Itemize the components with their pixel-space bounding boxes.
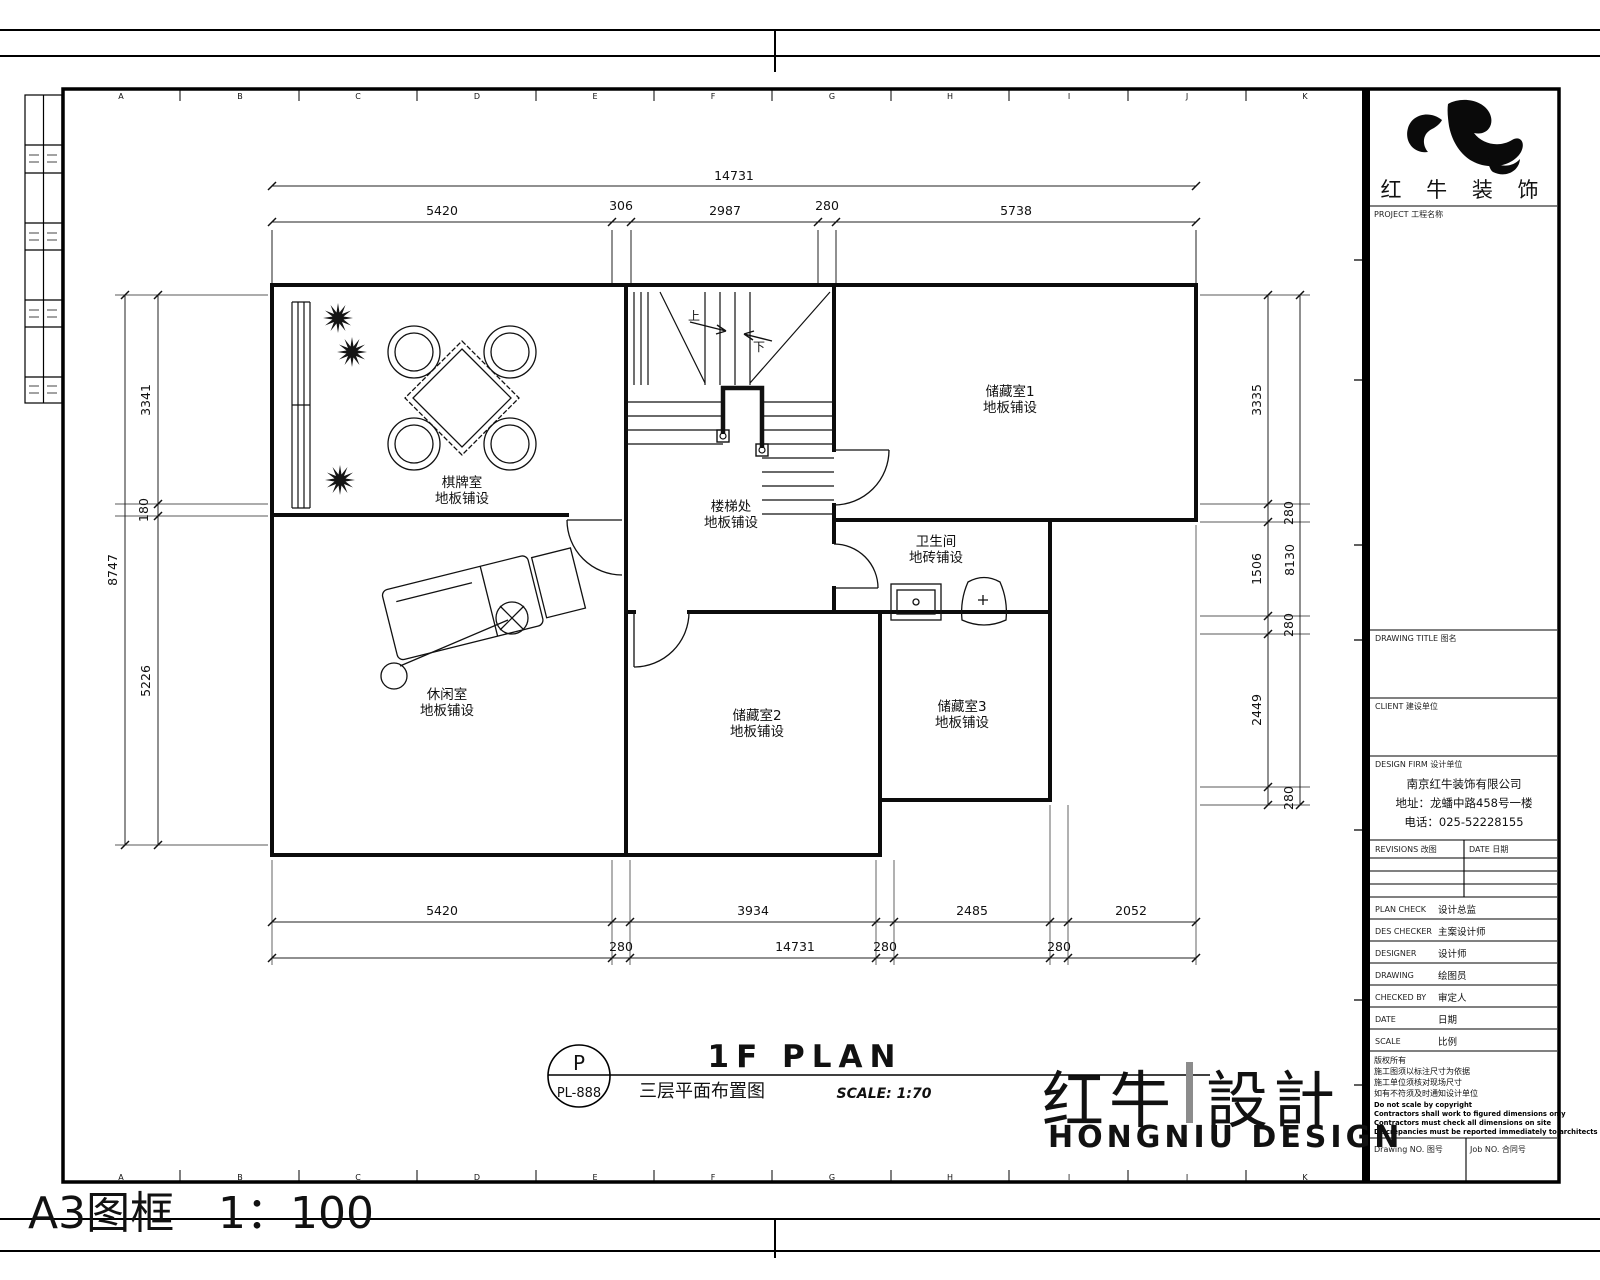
- grid-letter: J: [1185, 92, 1188, 101]
- dim-top-seg: 306: [609, 198, 633, 213]
- plant-icon: [337, 337, 367, 367]
- dim-bottom-seg: 2052: [1115, 903, 1147, 918]
- dim-top-total: 14731: [714, 168, 754, 183]
- bathroom-fixtures: [891, 578, 1006, 626]
- dim-right-gap: 280: [1281, 501, 1296, 525]
- room-name: 休闲室: [427, 686, 468, 703]
- grid-letter: I: [1068, 92, 1070, 101]
- plan-title-en: 1F PLAN: [708, 1039, 903, 1075]
- plants: [323, 303, 367, 495]
- grid-letter: H: [947, 92, 953, 101]
- room-label-leisure-room: 休闲室 地板铺设: [420, 686, 474, 719]
- window-strip: [292, 302, 310, 508]
- note-line: 版权所有: [1374, 1055, 1406, 1065]
- dim-bottom-seg: 5420: [426, 903, 458, 918]
- room-name: 楼梯处: [711, 499, 752, 515]
- room-name: 卫生间: [916, 534, 957, 550]
- title-bubble-code: PL-888: [557, 1086, 601, 1101]
- chair-icon: [484, 418, 536, 470]
- door-storage2: [634, 612, 689, 667]
- room-finish: 地板铺设: [704, 515, 758, 531]
- grid-letter: G: [829, 92, 835, 101]
- staff-row-label: CHECKED BY: [1375, 993, 1426, 1002]
- room-finish: 地板铺设: [435, 491, 489, 507]
- dim-bottom-seg: 3934: [737, 903, 769, 918]
- room-name: 储藏室1: [985, 383, 1034, 400]
- dim-right-seg: 2449: [1249, 694, 1264, 726]
- staff-row-label: DESIGNER: [1375, 949, 1417, 958]
- brand-cn-left: 红牛: [1042, 1064, 1176, 1137]
- room-label-storage1: 储藏室1 地板铺设: [983, 383, 1037, 416]
- sheet-border: [63, 89, 1559, 1182]
- dim-top-seg: 5738: [1000, 203, 1032, 218]
- dim-left-seg: 5226: [138, 665, 153, 697]
- grid-letter: A: [118, 1173, 124, 1182]
- grid-letters-top: A B C D E F G H I J K: [118, 92, 1308, 101]
- plan-title-scale: SCALE: 1:70: [837, 1086, 932, 1102]
- revisions-date-label: DATE 日期: [1469, 845, 1508, 854]
- note-line: Do not scale by copyright: [1374, 1101, 1473, 1109]
- grid-letter: I: [1068, 1173, 1070, 1182]
- drawing-title-label: DRAWING TITLE 图名: [1375, 633, 1457, 643]
- grid-letter: D: [474, 92, 480, 101]
- grid-letter: F: [711, 92, 716, 101]
- design-firm-label: DESIGN FIRM 设计单位: [1375, 759, 1462, 769]
- logo-brand-chars: 红 牛 装 饰: [1380, 178, 1547, 202]
- brand-divider: [1186, 1062, 1193, 1123]
- staff-rows: PLAN CHECK 设计总监 DES CHECKER 主案设计师 DESIGN…: [1375, 904, 1486, 1048]
- staff-row-value: 设计师: [1438, 948, 1467, 960]
- floor-lamp-icon: [381, 602, 528, 689]
- sink-icon: [891, 584, 941, 620]
- grid-letter: H: [947, 1173, 953, 1182]
- dimension-ticks: [121, 182, 1304, 962]
- room-label-stair-hall: 楼梯处 地板铺设: [704, 499, 758, 531]
- title-block-notes: 版权所有 施工图须以标注尺寸为依据 施工单位须核对现场尺寸 如有不符须及时通知设…: [1374, 1055, 1598, 1136]
- dimension-lines: [115, 186, 1310, 965]
- dim-bottom-gap: 280: [1047, 939, 1071, 954]
- grid-letter: F: [711, 1173, 716, 1182]
- cad-canvas: A B C D E F G H I J K A B C D E F G H I …: [0, 0, 1600, 1280]
- chair-icon: [484, 326, 536, 378]
- dim-bottom-seg: 2485: [956, 903, 988, 918]
- staff-row-label: SCALE: [1375, 1037, 1401, 1046]
- chair-icon: [388, 326, 440, 378]
- grid-letter: B: [237, 92, 243, 101]
- dim-top-seg: 5420: [426, 203, 458, 218]
- dim-right-total: 8130: [1282, 544, 1297, 576]
- grid-letter: K: [1302, 92, 1308, 101]
- dim-bottom-gap: 280: [873, 939, 897, 954]
- dim-left-seg: 180: [136, 498, 151, 522]
- dim-right-gap: 280: [1281, 613, 1296, 637]
- staff-row-label: DRAWING: [1375, 971, 1414, 980]
- room-label-bathroom: 卫生间 地砖铺设: [909, 534, 963, 566]
- staff-row-value: 比例: [1438, 1036, 1457, 1048]
- plant-icon: [325, 465, 355, 495]
- client-label: CLIENT 建设单位: [1375, 701, 1438, 711]
- grid-letter: J: [1185, 1173, 1188, 1182]
- staff-row-label: DATE: [1375, 1015, 1396, 1024]
- plant-icon: [323, 303, 353, 333]
- company-phone: 电话：025-52228155: [1404, 815, 1523, 829]
- frame-scale: 1：100: [218, 1188, 374, 1239]
- plan-title-cn: 三层平面布置图: [639, 1081, 765, 1102]
- dim-top-seg: 2987: [709, 203, 741, 218]
- room-finish: 地板铺设: [730, 724, 784, 740]
- grid-letter: C: [355, 1173, 361, 1182]
- room-name: 储藏室3: [937, 698, 986, 715]
- staff-row-value: 审定人: [1438, 992, 1467, 1004]
- title-bubble-letter: P: [573, 1051, 585, 1075]
- dim-bottom-gap: 280: [609, 939, 633, 954]
- room-finish: 地板铺设: [983, 400, 1037, 416]
- door-storage1: [834, 450, 889, 505]
- drawing-sheet: A B C D E F G H I J K A B C D E F G H I …: [0, 0, 1600, 1280]
- recliner: [381, 544, 587, 689]
- room-finish: 地板铺设: [420, 703, 474, 719]
- stair-up-label: 上: [688, 309, 700, 323]
- note-line: 施工单位须核对现场尺寸: [1374, 1077, 1462, 1087]
- staff-row-value: 主案设计师: [1438, 926, 1486, 938]
- note-line: Discrepancies must be reported immediate…: [1374, 1128, 1598, 1136]
- grid-letter: D: [474, 1173, 480, 1182]
- note-line: 如有不符须及时通知设计单位: [1374, 1088, 1478, 1098]
- room-label-storage2: 储藏室2 地板铺设: [730, 707, 784, 740]
- grid-letter: E: [592, 92, 597, 101]
- grid-letter: K: [1302, 1173, 1308, 1182]
- dim-right-seg: 1506: [1249, 553, 1264, 585]
- staff-row-value: 日期: [1438, 1015, 1457, 1026]
- grid-letter: E: [592, 1173, 597, 1182]
- grid-letter: C: [355, 92, 361, 101]
- grid-letter: A: [118, 92, 124, 101]
- job-no-label: Job NO. 合同号: [1469, 1144, 1526, 1154]
- staff-row-value: 设计总监: [1438, 904, 1477, 916]
- room-name: 棋牌室: [442, 474, 483, 491]
- room-finish: 地板铺设: [935, 715, 989, 731]
- fold-strip-table: [25, 95, 62, 403]
- dim-left-total: 8747: [105, 554, 120, 586]
- company-name: 南京红牛装饰有限公司: [1407, 777, 1522, 791]
- room-label-game-room: 棋牌室 地板铺设: [435, 474, 489, 507]
- dim-left-seg: 3341: [138, 384, 153, 416]
- dim-top-seg: 280: [815, 198, 839, 213]
- dim-bottom-total: 14731: [775, 939, 815, 954]
- company-address: 地址：龙蟠中路458号一楼: [1396, 796, 1533, 810]
- staff-row-value: 绘图员: [1438, 970, 1467, 982]
- title-block: 红 牛 装 饰 PROJECT 工程名称 DRAWING TITLE 图名 CL…: [1370, 100, 1598, 1182]
- room-name: 储藏室2: [732, 707, 781, 724]
- grid-letter: G: [829, 1173, 835, 1182]
- stairs: [626, 292, 834, 514]
- revisions-label: REVISIONS 改图: [1375, 844, 1437, 854]
- room-label-storage3: 储藏室3 地板铺设: [935, 698, 989, 731]
- frame-label: A3图框: [28, 1188, 174, 1239]
- chair-icon: [388, 418, 440, 470]
- sheet-footer: A3图框 1：100: [28, 1188, 374, 1239]
- room-labels: 棋牌室 地板铺设 储藏室1 地板铺设 楼梯处 地板铺设 卫生间 地砖铺设 休闲室…: [420, 309, 1037, 740]
- brand-cn-right: 設計: [1206, 1064, 1340, 1137]
- door-bathroom: [834, 544, 878, 588]
- staff-row-label: DES CHECKER: [1375, 927, 1432, 936]
- room-finish: 地砖铺设: [909, 550, 963, 566]
- toilet-icon: [962, 578, 1007, 626]
- dim-right-seg: 3335: [1249, 384, 1264, 416]
- dim-right-gap: 280: [1281, 786, 1296, 810]
- project-label: PROJECT 工程名称: [1374, 209, 1443, 219]
- stair-down-label: 下: [753, 340, 765, 354]
- bull-logo-icon: [1407, 100, 1523, 174]
- note-line: Contractors shall work to figured dimens…: [1374, 1110, 1566, 1118]
- game-table: [388, 326, 536, 470]
- titleblock-divider: [1362, 89, 1370, 1182]
- grid-letter: B: [237, 1173, 243, 1182]
- staff-row-label: PLAN CHECK: [1375, 905, 1427, 914]
- note-line: 施工图须以标注尺寸为依据: [1374, 1066, 1470, 1076]
- doors: [567, 450, 889, 667]
- brand-mark: HONGNIU DESIGN 红牛 設計: [1042, 1062, 1403, 1155]
- divider-ticks: [1354, 260, 1362, 1085]
